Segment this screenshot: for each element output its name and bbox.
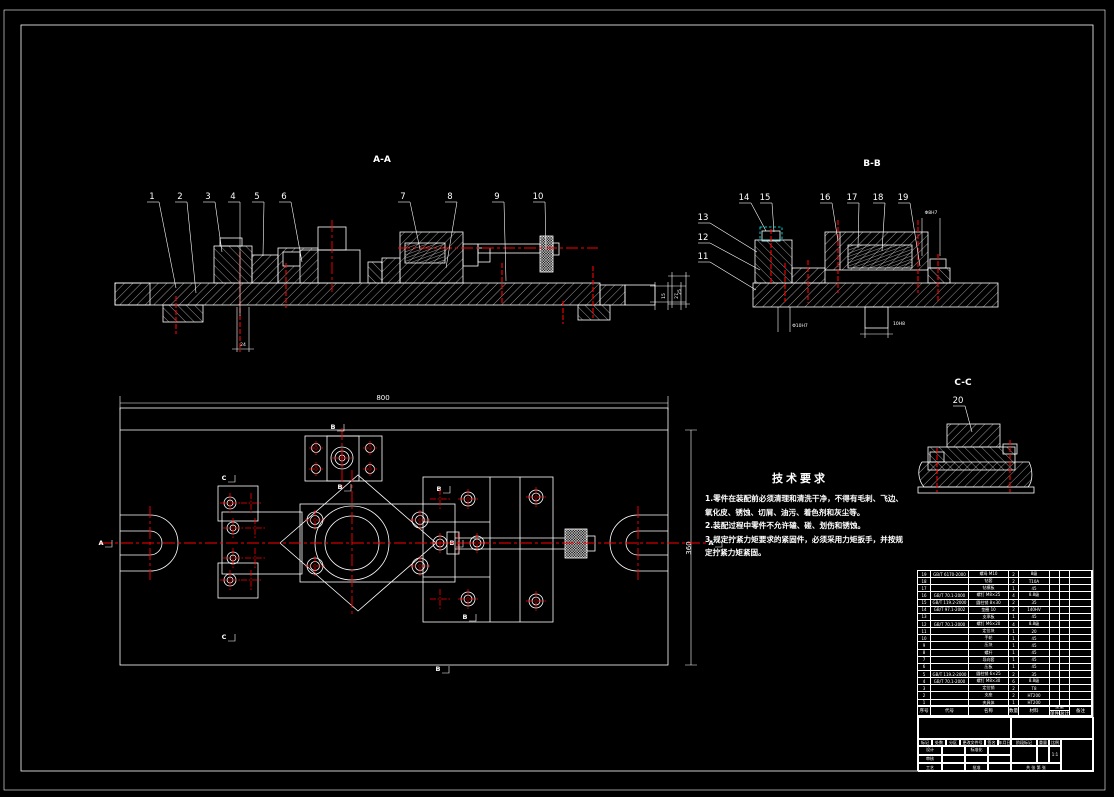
bom-col-material: 材料 [1019, 705, 1050, 715]
plan-centerlines [100, 428, 710, 616]
bom-cell [1050, 678, 1060, 685]
section-mark-tick [105, 540, 112, 547]
callout-number: 11 [698, 252, 709, 262]
section-mark-tick [344, 484, 351, 491]
bom-weight-total: 总计 [1059, 710, 1069, 715]
bom-cell: 6 [918, 664, 931, 671]
tech-title: 技术要求 [705, 470, 895, 486]
tech-requirement-line: 氧化皮、锈蚀、切屑、油污、着色剂和灰尘等。 [705, 506, 895, 520]
bom-cell [1050, 614, 1060, 621]
bom-row: 17钻模板145 [918, 585, 1092, 592]
callout-number: 18 [873, 193, 884, 203]
bom-col-no: 序号 [918, 705, 931, 715]
bom-cell [1060, 614, 1070, 621]
bom-cell: 14 [918, 607, 931, 614]
bom-cell: 4 [918, 678, 931, 685]
bom-cell [1060, 678, 1070, 685]
bom-cell [1050, 621, 1060, 628]
bom-col-name: 名称 [969, 705, 1009, 715]
bom-cell [1070, 650, 1092, 657]
bom-cell [1070, 635, 1092, 642]
bom-cell [931, 635, 969, 642]
tb-stage-cell [1011, 746, 1037, 763]
tb-approver: 批准 [965, 763, 988, 772]
view-plan: 800 360 [100, 394, 710, 665]
callout-number: 20 [953, 396, 964, 406]
technical-requirements: 技术要求 1.零件在装配前必须清理和清洗干净，不得有毛刺、飞边、氧化皮、锈蚀、切… [705, 470, 895, 560]
tb-cell [965, 755, 988, 764]
bom-cell: 9 [918, 642, 931, 649]
callout-leader [710, 262, 756, 290]
bom-row: 16GB/T 70.1-2000螺钉 M8×2548.8级 [918, 592, 1092, 599]
section-mark-tick [228, 475, 235, 482]
bom-cell [1070, 592, 1092, 599]
callout-number: 5 [254, 192, 259, 202]
bom-cell: 压块 [969, 642, 1009, 649]
tb-stage-label: 阶段标记 [1011, 739, 1037, 746]
bom-cell [931, 628, 969, 635]
bom-cell [1050, 650, 1060, 657]
bom-cell: 2 [1009, 692, 1019, 699]
bom-cell: 钻模板 [969, 585, 1009, 592]
bom-cell [1060, 635, 1070, 642]
section-mark-tick [228, 634, 235, 641]
bom-cell: 1 [1009, 635, 1019, 642]
bom-cell: 8级 [1019, 571, 1050, 578]
bolt-crosshair [223, 548, 243, 568]
bom-row: 15GB/T 119.2-2000圆柱销 8×30235 [918, 600, 1092, 607]
callout-number: 17 [847, 193, 858, 203]
bom-cell [931, 664, 969, 671]
bom-cell: 45 [1019, 585, 1050, 592]
bom-cell: 3 [918, 685, 931, 692]
bom-cell [1070, 621, 1092, 628]
view-section-aa: A-A 24 [115, 155, 686, 352]
tb-signature: 签名 [985, 739, 998, 746]
bom-row: 14GB/T 97.1-2002垫圈 102140HV [918, 607, 1092, 614]
callout-number: 14 [739, 193, 750, 203]
bom-cell [1070, 678, 1092, 685]
bom-cell: 6 [1009, 678, 1019, 685]
bom-cell [1060, 621, 1070, 628]
bom-cell [931, 685, 969, 692]
bom-cell [1070, 664, 1092, 671]
bom-row: 6压板145 [918, 664, 1092, 671]
bom-col-weight: 重量 单件 总计 [1050, 705, 1070, 715]
bom-cell: 45 [1019, 650, 1050, 657]
tb-part-name-cell [1011, 717, 1094, 739]
bom-row: 4GB/T 70.1-2000螺钉 M8×3068.8级 [918, 678, 1092, 685]
tb-cell [942, 746, 965, 755]
tb-drawing-no-cell [1061, 739, 1094, 772]
tb-cell [942, 763, 965, 772]
dim-bb-height: 25 [677, 289, 683, 295]
bom-col-qty: 数量 [1009, 705, 1019, 715]
bom-cell: 8.8级 [1019, 621, 1050, 628]
bom-cell [1070, 657, 1092, 664]
bom-cell: 1 [1009, 664, 1019, 671]
section-mark: C [222, 474, 227, 482]
bom-cell [1060, 592, 1070, 599]
bom-cell: 12 [918, 621, 931, 628]
callout-number: 19 [898, 193, 909, 203]
bom-row: 7导向套145 [918, 657, 1092, 664]
bom-row: 8螺杆145 [918, 650, 1092, 657]
callout-leader [710, 243, 760, 270]
bom-cell: 导向套 [969, 657, 1009, 664]
bom-row: 18钻套2T10A [918, 578, 1092, 585]
callout-leader [772, 203, 774, 232]
tb-cell [988, 746, 1011, 755]
bolt-crosshair [220, 493, 240, 513]
bom-cell: 1 [1009, 585, 1019, 592]
bolt-crosshair [220, 570, 240, 590]
tb-process: 工艺 [918, 763, 942, 772]
bolt-crosshair [245, 548, 265, 568]
bom-cell: T8 [1019, 685, 1050, 692]
view-label-aa: A-A [373, 155, 391, 165]
bom-cell: 压板 [969, 664, 1009, 671]
bom-cell: 圆柱销 8×30 [969, 600, 1009, 607]
bom-cell [931, 657, 969, 664]
section-mark: C [222, 633, 227, 641]
bom-cell: 支座 [969, 692, 1009, 699]
bom-cell: 螺杆 [969, 650, 1009, 657]
bom-weight-unit: 单件 [1050, 710, 1059, 715]
bom-cell [1060, 571, 1070, 578]
bom-cell: 17 [918, 585, 931, 592]
bom-cell: 8.8级 [1019, 678, 1050, 685]
bom-row: 10手轮145 [918, 635, 1092, 642]
bom-cell: 5 [918, 671, 931, 678]
tech-requirement-line: 定拧紧力矩紧固。 [705, 546, 895, 560]
bom-cell: 定位块 [969, 628, 1009, 635]
bom-cell [1070, 571, 1092, 578]
bom-cell: 2 [1009, 600, 1019, 607]
bom-cell: 2 [1009, 571, 1019, 578]
bom-cell [1070, 692, 1092, 699]
bom-cell: 13 [918, 614, 931, 621]
bom-cell [1050, 685, 1060, 692]
bom-cell [1070, 578, 1092, 585]
bom-cell: 2 [1009, 607, 1019, 614]
bom-cell: 1 [1009, 657, 1019, 664]
dim-aa-slot: 24 [240, 342, 246, 348]
dim-aa-step1: 15 [661, 293, 667, 299]
bom-cell: 圆柱销 6×25 [969, 671, 1009, 678]
bom-cell [1050, 635, 1060, 642]
bom-cell: 钻套 [969, 578, 1009, 585]
tb-designer: 设计 [918, 746, 942, 755]
bom-cell: 2 [1009, 671, 1019, 678]
bolt-crosshair [363, 441, 377, 455]
bolt-crosshair [309, 462, 323, 476]
callout-leader [215, 202, 222, 252]
bom-row: 13支承板145 [918, 614, 1092, 621]
bom-cell: GB/T 119.2-2000 [931, 600, 969, 607]
bom-cell: HT200 [1019, 692, 1050, 699]
bom-cell: 手轮 [969, 635, 1009, 642]
bom-cell: 1 [1009, 628, 1019, 635]
callout-number: 13 [698, 213, 709, 223]
tech-lines: 1.零件在装配前必须清理和清洗干净，不得有毛刺、飞边、氧化皮、锈蚀、切屑、油污、… [705, 492, 895, 560]
bom-cell: 1 [1009, 650, 1019, 657]
bom-cell: GB/T 119.2-2000 [931, 671, 969, 678]
tech-requirement-line: 3.规定拧紧力矩要求的紧固件，必须采用力矩扳手，并按规 [705, 533, 895, 547]
bom-cell: 11 [918, 628, 931, 635]
bom-cell [1070, 607, 1092, 614]
bom-cell: 45 [1019, 642, 1050, 649]
callout-number: 12 [698, 233, 709, 243]
view-section-cc: C-C [918, 378, 1034, 493]
bom-cell: GB/T 97.1-2002 [931, 607, 969, 614]
tb-scale-value: 1:1 [1049, 746, 1061, 763]
callout-number: 2 [177, 192, 182, 202]
bom-cell: 2 [1009, 685, 1019, 692]
bom-cell [1060, 600, 1070, 607]
view-label-bb: B-B [863, 159, 881, 169]
bom-cell: 4 [1009, 621, 1019, 628]
tech-requirement-line: 1.零件在装配前必须清理和清洗干净，不得有毛刺、飞边、 [705, 492, 895, 506]
bom-cell: 2 [1009, 578, 1019, 585]
bom-row: 19GB/T 6170-2000螺母 M1028级 [918, 571, 1092, 578]
bom-cell [1070, 628, 1092, 635]
bolt-crosshair [410, 556, 430, 576]
bom-cell [1060, 650, 1070, 657]
bom-cell [1050, 642, 1060, 649]
callout-number: 8 [447, 192, 452, 202]
section-mark: B [463, 613, 468, 621]
bom-cell: 45 [1019, 664, 1050, 671]
bom-cell: 螺钉 M8×25 [969, 592, 1009, 599]
plan-dimensions: 800 360 [120, 394, 697, 665]
bom-cell: 18 [918, 578, 931, 585]
tb-cell [988, 763, 1011, 772]
bom-cell [931, 614, 969, 621]
bom-cell [1050, 671, 1060, 678]
bom-cell [1060, 692, 1070, 699]
bom-cell [1060, 642, 1070, 649]
bom-col-note: 备注 [1070, 705, 1092, 715]
callout-number: 10 [533, 192, 544, 202]
callout-leader [263, 202, 264, 256]
bom-cell: 1 [1009, 614, 1019, 621]
bom-cell [1050, 607, 1060, 614]
callout-number: 1 [149, 192, 154, 202]
view-section-bb: B-B 25 Φ10H7 10H8 Φ8H7 [668, 159, 998, 338]
callout-leader [187, 202, 196, 293]
section-mark-tick [456, 540, 463, 547]
bom-cell: 螺母 M10 [969, 571, 1009, 578]
bom-cell [931, 578, 969, 585]
tech-requirement-line: 2.装配过程中零件不允许磕、碰、划伤和锈蚀。 [705, 519, 895, 533]
bom-cell [1050, 600, 1060, 607]
bom-cell [1060, 628, 1070, 635]
bom-cell: GB/T 70.1-2000 [931, 621, 969, 628]
bom-cell [1050, 592, 1060, 599]
bom-cell [1060, 657, 1070, 664]
bom-cell: 4 [1009, 592, 1019, 599]
bom-cell: 19 [918, 571, 931, 578]
section-mark: B [436, 665, 441, 673]
bom-cell [1070, 685, 1092, 692]
callout-number: 15 [760, 193, 771, 203]
bom-cell: 15 [918, 600, 931, 607]
bom-cell: 1 [1009, 642, 1019, 649]
bom-cell [1060, 671, 1070, 678]
bom-cell [931, 692, 969, 699]
section-mark: B [437, 485, 442, 493]
bolt-crosshair [305, 510, 325, 530]
bolt-crosshair [410, 510, 430, 530]
bom-cell: GB/T 6170-2000 [931, 571, 969, 578]
bom-cell: 8 [918, 650, 931, 657]
bolt-crosshair [363, 462, 377, 476]
callout-number: 7 [400, 192, 405, 202]
bom-row: 11定位块120 [918, 628, 1092, 635]
bom-cell: 45 [1019, 657, 1050, 664]
callout-leader [504, 202, 506, 281]
callout-leader [751, 203, 766, 231]
bom-cell: 45 [1019, 614, 1050, 621]
bom-cell: 8.8级 [1019, 592, 1050, 599]
tb-weight-cell [1037, 746, 1049, 763]
tb-count: 处数 [932, 739, 946, 746]
bolt-crosshair [430, 489, 450, 509]
bom-cell: GB/T 70.1-2000 [931, 678, 969, 685]
bom-cell: 35 [1019, 671, 1050, 678]
bom-cell [1070, 585, 1092, 592]
view-label-cc: C-C [954, 378, 972, 388]
bom-cell: 定位销 [969, 685, 1009, 692]
bom-cell [931, 585, 969, 592]
tb-revision-grid [918, 717, 1011, 739]
bom-col-code: 代号 [931, 705, 969, 715]
callout-leader [710, 223, 757, 252]
bom-header: 序号 代号 名称 数量 材料 重量 单件 总计 备注 [918, 705, 1092, 715]
bom-table: 19GB/T 6170-2000螺母 M1028级18钻套2T10A17钻模板1… [917, 570, 1093, 716]
dim-bb-pin: Φ8H7 [925, 210, 938, 216]
tb-sheet-info: 共 张 第 张 [1011, 763, 1061, 772]
section-mark: B [338, 483, 343, 491]
bom-cell: 螺钉 M8×30 [969, 678, 1009, 685]
tb-scale-label: 比例 [1049, 739, 1061, 746]
bom-cell [931, 642, 969, 649]
bom-cell [1070, 614, 1092, 621]
bom-cell [1050, 571, 1060, 578]
section-mark-tick [442, 666, 449, 673]
bom-cell [1070, 671, 1092, 678]
bolt-crosshair [430, 589, 450, 609]
bom-cell [1050, 664, 1060, 671]
tb-checker: 审核 [918, 755, 942, 764]
callout-number: 6 [281, 192, 286, 202]
bom-cell: 螺钉 M6×20 [969, 621, 1009, 628]
tb-date: 年月日 [998, 739, 1011, 746]
bom-cell [1070, 642, 1092, 649]
bom-cell: 10 [918, 635, 931, 642]
bom-cell: 7 [918, 657, 931, 664]
bom-cell: 35 [1019, 600, 1050, 607]
bom-cell [931, 650, 969, 657]
section-mark-tick [443, 486, 450, 493]
tb-cell [988, 755, 1011, 764]
callout-number: 4 [230, 192, 235, 202]
bom-cell [1050, 628, 1060, 635]
bom-cell: 16 [918, 592, 931, 599]
bom-rows: 19GB/T 6170-2000螺母 M1028级18钻套2T10A17钻模板1… [918, 571, 1092, 707]
bom-cell: 垫圈 10 [969, 607, 1009, 614]
bom-row: 5GB/T 119.2-2000圆柱销 6×25235 [918, 671, 1092, 678]
bom-cell [1050, 578, 1060, 585]
callout-leader [159, 202, 176, 288]
bom-cell [1050, 692, 1060, 699]
tb-standardization: 标准化 [965, 746, 988, 755]
callout-number: 9 [494, 192, 499, 202]
tb-change-doc: 更改文件号 [960, 739, 985, 746]
bom-cell: 45 [1019, 635, 1050, 642]
tb-mark: 标记 [918, 739, 932, 746]
drawing-sheet: A-A 24 [0, 0, 1114, 797]
tb-weight-label: 重量 [1037, 739, 1049, 746]
tb-cell [942, 755, 965, 764]
bom-row: 9压块145 [918, 642, 1092, 649]
dim-bb-hole: Φ10H7 [792, 323, 808, 329]
bom-cell [1070, 600, 1092, 607]
bom-cell: 140HV [1019, 607, 1050, 614]
bom-cell: T10A [1019, 578, 1050, 585]
bom-cell [1060, 685, 1070, 692]
section-mark: B [331, 423, 336, 431]
dim-plan-width: 800 [376, 394, 389, 402]
bom-cell [1060, 585, 1070, 592]
section-mark: A [98, 539, 103, 547]
bom-cell: 支承板 [969, 614, 1009, 621]
callout-number: 3 [205, 192, 210, 202]
bom-cell [1050, 585, 1060, 592]
bom-cell: GB/T 70.1-2000 [931, 592, 969, 599]
bom-cell [1060, 607, 1070, 614]
title-block: 标记 处数 分区 更改文件号 签名 年月日 设计 审核 工艺 标准化 批准 阶段… [917, 716, 1093, 771]
bom-cell [1050, 657, 1060, 664]
bom-row: 2支座2HT200 [918, 692, 1092, 699]
bom-row: 3定位销2T8 [918, 685, 1092, 692]
bolt-crosshair [309, 441, 323, 455]
dim-bb-slot: 10H8 [893, 321, 905, 327]
bom-cell [1060, 664, 1070, 671]
bom-row: 12GB/T 70.1-2000螺钉 M6×2048.8级 [918, 621, 1092, 628]
callout-number: 16 [820, 193, 831, 203]
bom-cell [1060, 578, 1070, 585]
tb-zone: 分区 [946, 739, 960, 746]
bom-cell: 2 [918, 692, 931, 699]
section-mark-tick [469, 614, 476, 621]
bom-cell: 20 [1019, 628, 1050, 635]
